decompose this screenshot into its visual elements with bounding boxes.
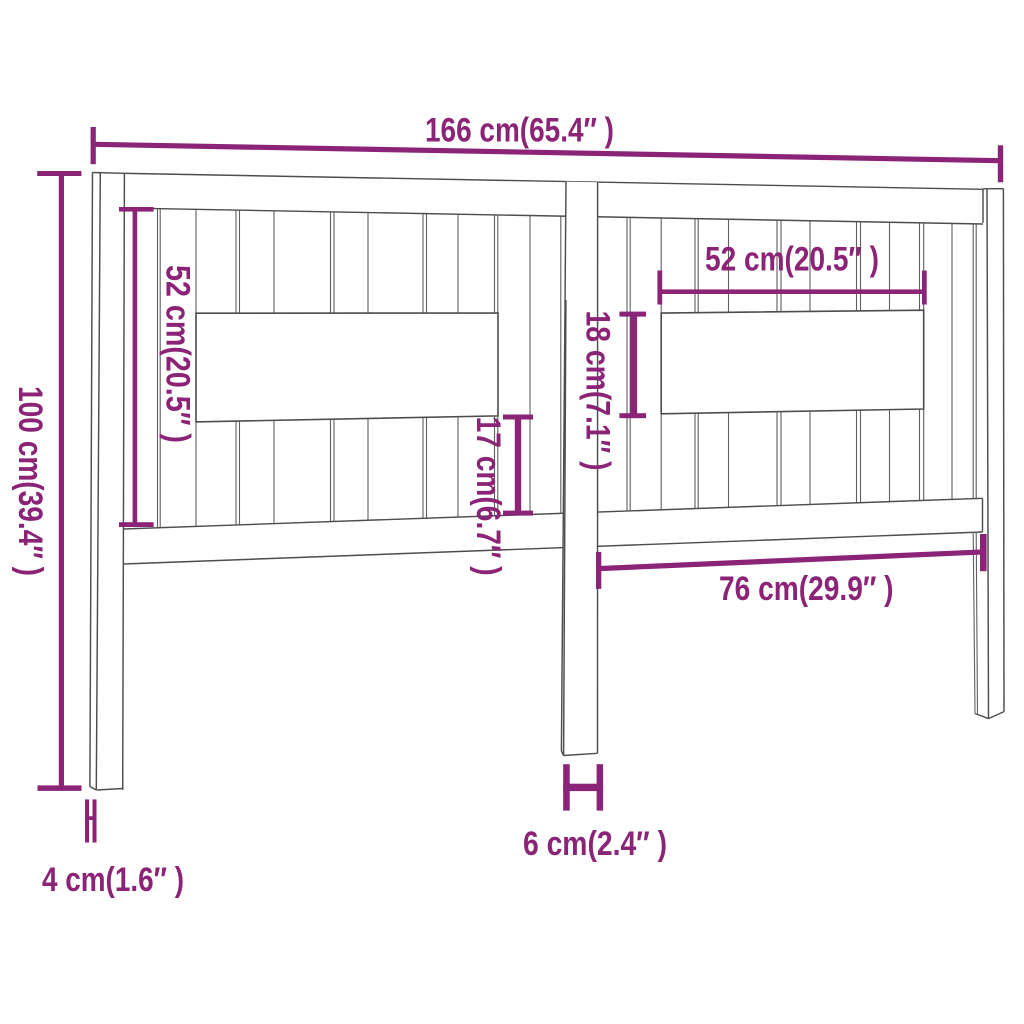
svg-text:166 cm(65.4″ ): 166 cm(65.4″ ) (425, 111, 614, 149)
svg-text:52 cm(20.5″ ): 52 cm(20.5″ ) (159, 265, 197, 443)
svg-text:6 cm(2.4″ ): 6 cm(2.4″ ) (523, 825, 667, 863)
svg-text:100 cm(39.4″ ): 100 cm(39.4″ ) (11, 386, 49, 576)
svg-text:52 cm(20.5″ ): 52 cm(20.5″ ) (705, 241, 879, 279)
svg-text:17 cm(6.7″ ): 17 cm(6.7″ ) (469, 417, 507, 576)
svg-text:4 cm(1.6″ ): 4 cm(1.6″ ) (42, 861, 184, 899)
svg-text:18 cm(7.1″ ): 18 cm(7.1″ ) (579, 311, 617, 471)
svg-text:76 cm(29.9″ ): 76 cm(29.9″ ) (719, 570, 894, 608)
